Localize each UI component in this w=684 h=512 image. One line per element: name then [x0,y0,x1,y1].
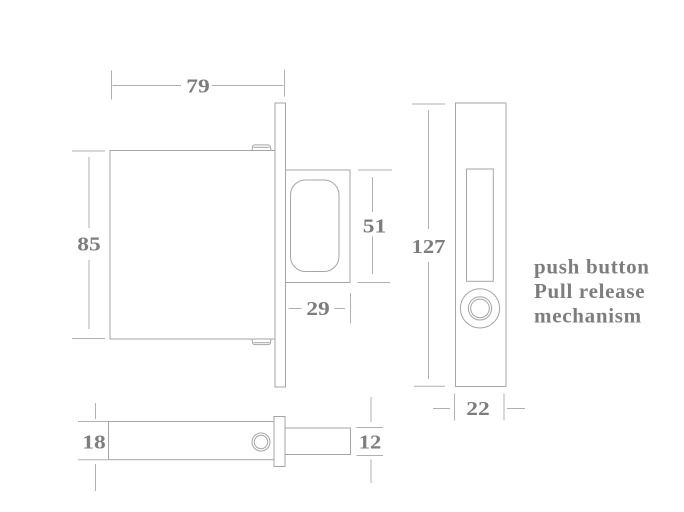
svg-text:51: 51 [363,216,387,238]
svg-text:18: 18 [82,432,106,454]
svg-text:29: 29 [306,298,330,320]
svg-text:22: 22 [466,398,490,420]
svg-text:12: 12 [359,432,382,454]
svg-text:mechanism: mechanism [534,304,642,328]
svg-text:85: 85 [77,234,101,256]
svg-text:127: 127 [412,236,446,258]
svg-text:push button: push button [534,254,650,278]
svg-text:79: 79 [186,76,210,98]
svg-text:Pull release: Pull release [534,279,645,303]
